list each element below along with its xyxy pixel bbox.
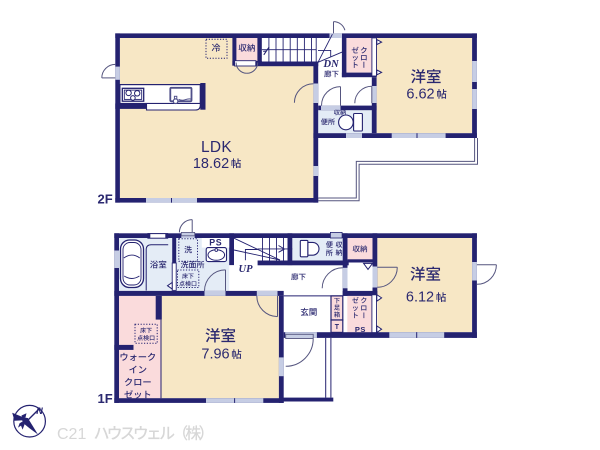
svg-text:1F: 1F	[98, 391, 113, 406]
svg-text:6.12: 6.12	[406, 290, 434, 306]
svg-text:PS: PS	[355, 325, 366, 334]
svg-text:LDK: LDK	[201, 139, 232, 156]
svg-text:18.62: 18.62	[193, 156, 229, 172]
svg-text:DN: DN	[323, 59, 340, 70]
svg-text:PS: PS	[209, 238, 222, 248]
svg-text:6.62: 6.62	[406, 87, 434, 103]
svg-text:N: N	[36, 406, 43, 416]
svg-text:C21: C21	[57, 426, 86, 443]
svg-text:UP: UP	[239, 264, 254, 275]
svg-text:2F: 2F	[98, 192, 113, 207]
svg-text:T: T	[335, 324, 340, 331]
svg-text:7.96: 7.96	[201, 347, 229, 363]
